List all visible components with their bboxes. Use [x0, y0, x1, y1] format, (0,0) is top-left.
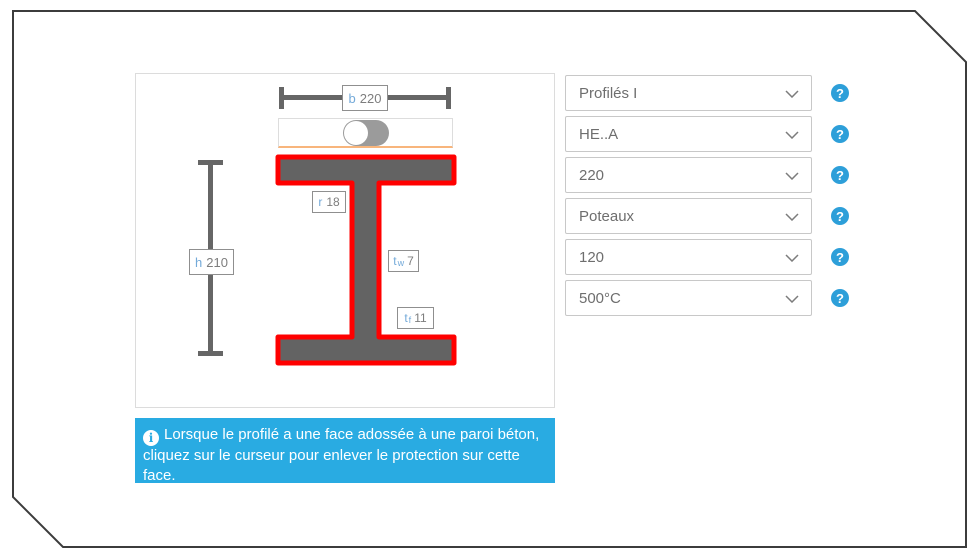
info-box: iLorsque le profilé a une face adossée à…: [135, 418, 555, 483]
dropdown-row: Profilés I ?: [565, 75, 865, 111]
dropdown-row: 120 ?: [565, 239, 865, 275]
dimension-value: 7: [407, 254, 414, 268]
toggle-knob[interactable]: [344, 121, 368, 145]
help-icon[interactable]: ?: [831, 84, 849, 102]
dropdown-row: HE..A ?: [565, 116, 865, 152]
info-icon: i: [143, 430, 159, 446]
temperature-select[interactable]: 500°C: [565, 280, 812, 316]
app-window: b220 h210 r18 tw7 tf11: [0, 0, 980, 560]
profile-size-select[interactable]: 220: [565, 157, 812, 193]
dimension-letter: t: [404, 311, 407, 325]
dimension-b-label: b220: [342, 85, 388, 111]
dimension-letter: b: [349, 91, 356, 106]
dropdown-value: 500°C: [579, 290, 621, 307]
dimension-letter: t: [393, 254, 396, 268]
chevron-down-icon: [785, 131, 799, 139]
chevron-down-icon: [785, 295, 799, 303]
help-icon[interactable]: ?: [831, 207, 849, 225]
dimension-value: 210: [206, 255, 228, 270]
dropdown-value: 120: [579, 249, 604, 266]
dimension-value: 18: [326, 195, 339, 209]
dropdown-value: Poteaux: [579, 208, 634, 225]
dropdown-row: Poteaux ?: [565, 198, 865, 234]
dimension-letter: r: [318, 195, 322, 209]
dimension-value: 11: [414, 311, 426, 325]
chevron-down-icon: [785, 90, 799, 98]
toggle-track[interactable]: [343, 120, 389, 146]
dimension-b-cap-right: [446, 87, 451, 109]
dimension-r-label: r18: [312, 191, 346, 213]
help-icon[interactable]: ?: [831, 248, 849, 266]
dropdown-value: HE..A: [579, 126, 618, 143]
dimension-tw-label: tw7: [388, 250, 419, 272]
help-icon[interactable]: ?: [831, 166, 849, 184]
info-text: Lorsque le profilé a une face adossée à …: [143, 426, 539, 484]
help-icon[interactable]: ?: [831, 289, 849, 307]
chevron-down-icon: [785, 254, 799, 262]
profile-family-select[interactable]: Profilés I: [565, 75, 812, 111]
dimension-tf-label: tf11: [397, 307, 434, 329]
chevron-down-icon: [785, 213, 799, 221]
dimension-h-label: h210: [189, 249, 234, 275]
dropdown-value: Profilés I: [579, 85, 637, 102]
profile-diagram-panel: b220 h210 r18 tw7 tf11: [135, 73, 555, 408]
i-beam-cross-section: [278, 157, 454, 363]
duration-select[interactable]: 120: [565, 239, 812, 275]
dimension-letter: h: [195, 255, 202, 270]
profile-series-select[interactable]: HE..A: [565, 116, 812, 152]
dimension-h-cap-bottom: [198, 351, 223, 356]
dimension-value: 220: [360, 91, 382, 106]
dropdown-value: 220: [579, 167, 604, 184]
protection-toggle[interactable]: [278, 118, 453, 148]
element-type-select[interactable]: Poteaux: [565, 198, 812, 234]
help-icon[interactable]: ?: [831, 125, 849, 143]
dropdown-row: 500°C ?: [565, 280, 865, 316]
chevron-down-icon: [785, 172, 799, 180]
dropdown-row: 220 ?: [565, 157, 865, 193]
